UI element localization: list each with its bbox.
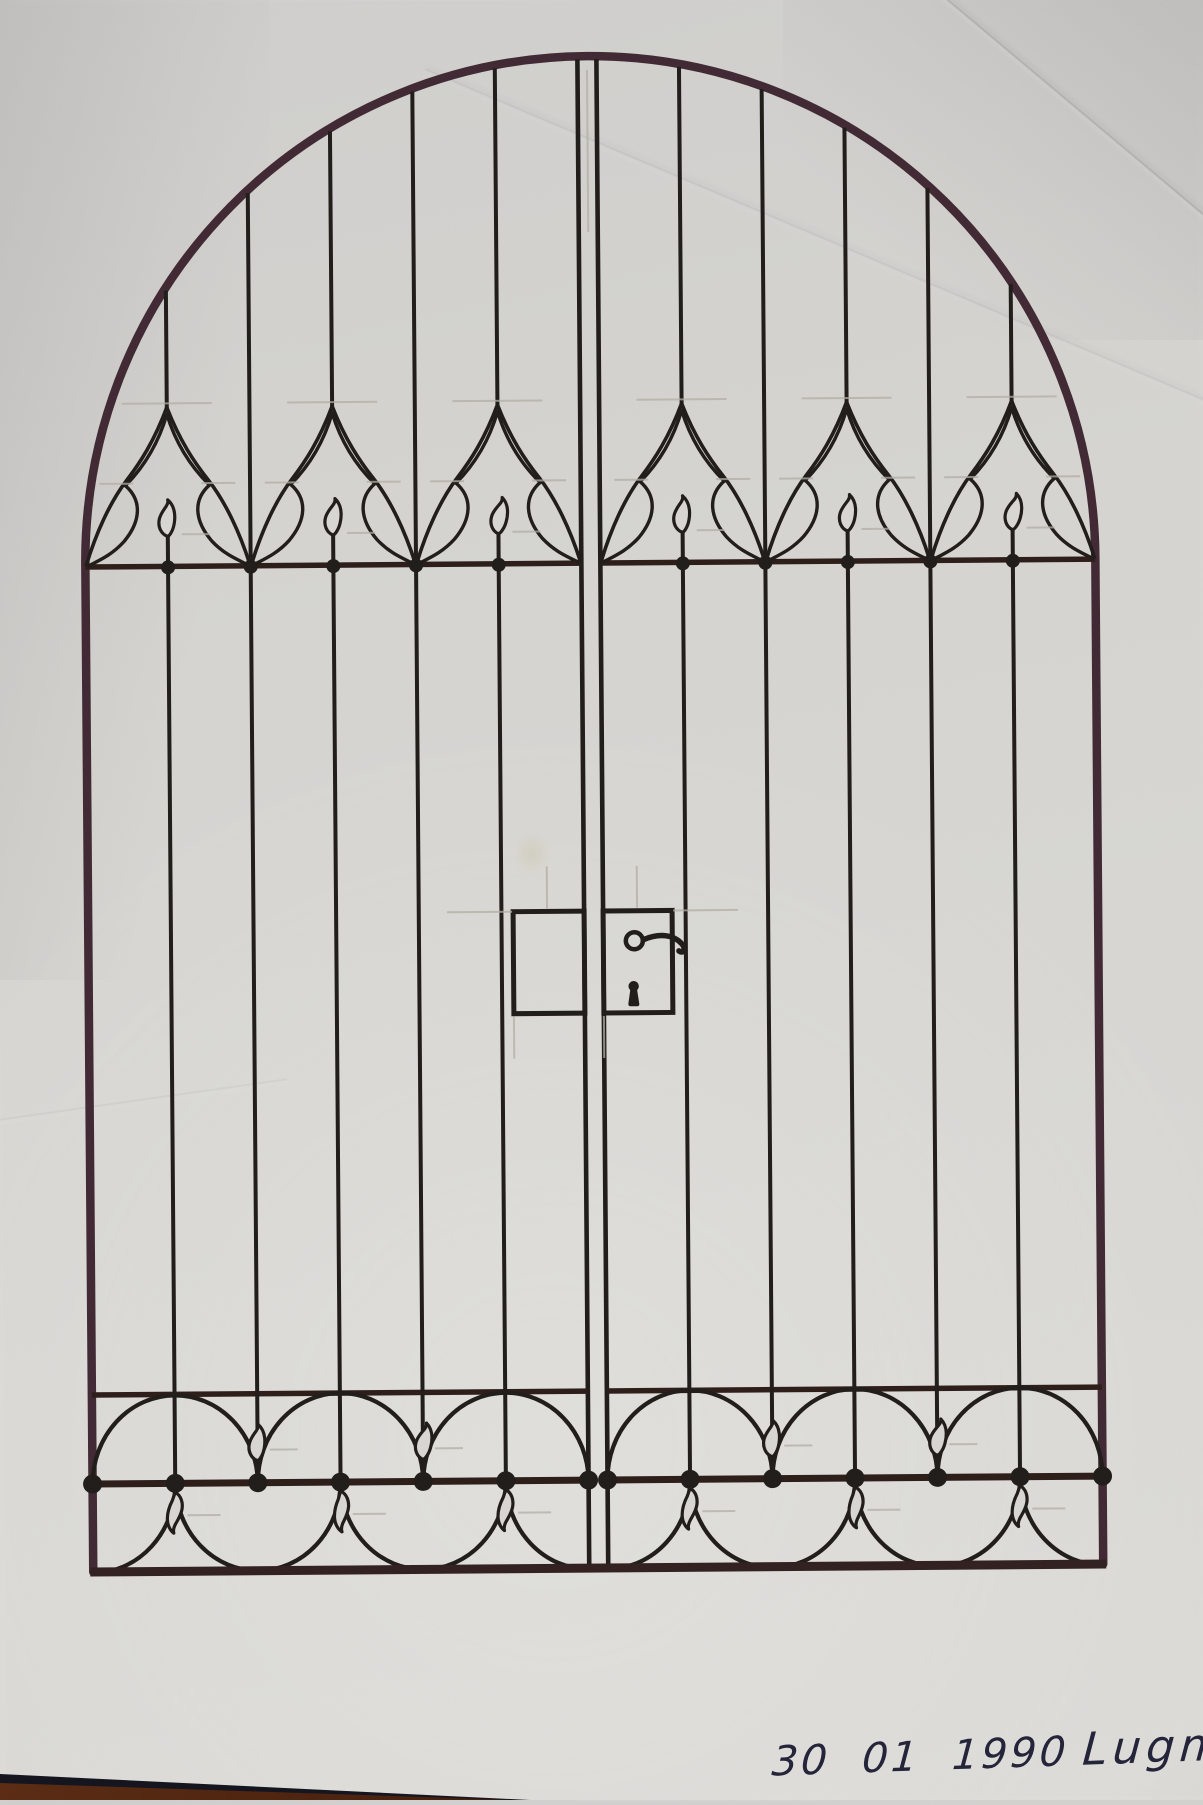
photo-vignette bbox=[0, 0, 1203, 1800]
photo-of-gate-sketch: { "photo": { "description": "Photograph … bbox=[0, 0, 1203, 1800]
